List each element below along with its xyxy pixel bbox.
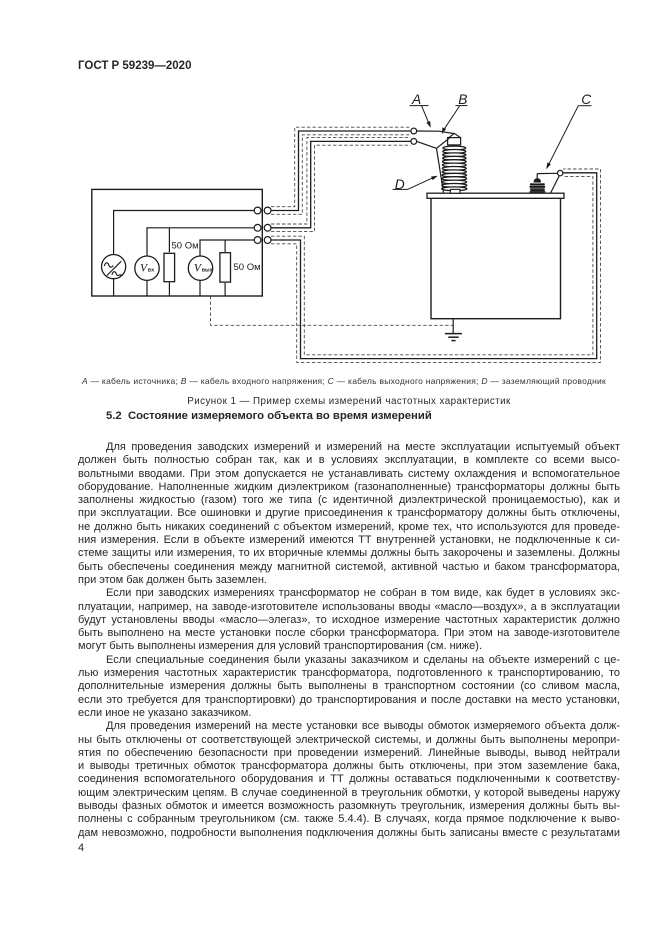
svg-text:вых: вых <box>202 268 213 274</box>
svg-text:B: B <box>458 92 467 107</box>
svg-text:C: C <box>581 92 592 107</box>
svg-text:50 Ом: 50 Ом <box>234 262 261 273</box>
svg-text:50 Ом: 50 Ом <box>172 240 199 251</box>
svg-text:A: A <box>411 92 421 107</box>
svg-text:D: D <box>395 177 405 192</box>
svg-text:вх: вх <box>148 268 154 274</box>
